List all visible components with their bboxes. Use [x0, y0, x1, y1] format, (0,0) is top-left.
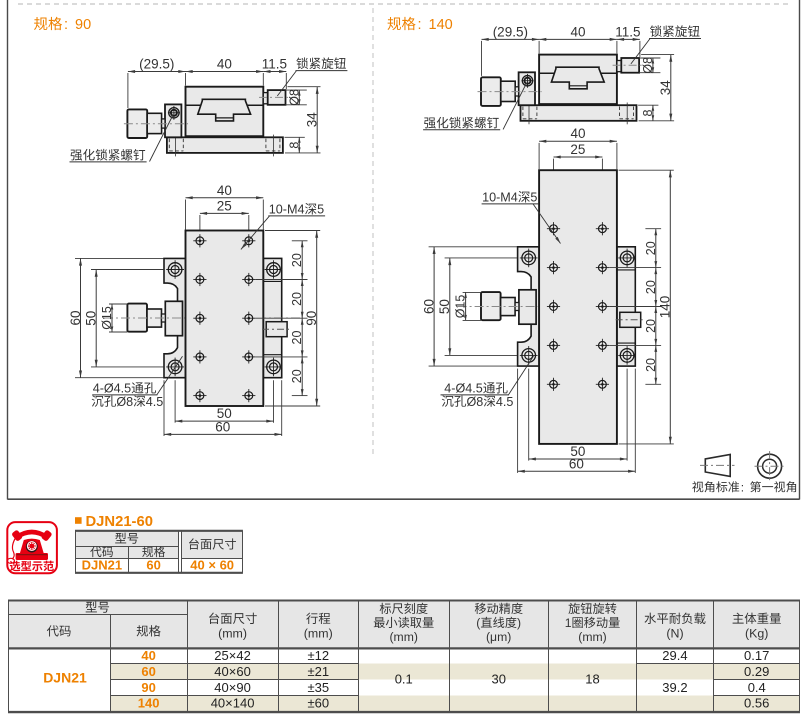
svg-text:50: 50: [437, 299, 452, 314]
svg-text:DJN21-60: DJN21-60: [86, 514, 153, 530]
svg-text:11.5: 11.5: [262, 57, 287, 72]
svg-text::: :: [64, 17, 68, 33]
svg-text:60: 60: [68, 310, 83, 325]
svg-text:25: 25: [217, 198, 232, 213]
svg-text:±60: ±60: [308, 696, 330, 711]
svg-text:4.5: 4.5: [146, 395, 164, 409]
svg-text:(μm): (μm): [486, 630, 511, 644]
svg-text:8: 8: [287, 142, 301, 149]
svg-text:60: 60: [421, 299, 436, 314]
svg-text:39.2: 39.2: [662, 680, 687, 695]
svg-text:40 × 60: 40 × 60: [190, 558, 234, 573]
svg-text:40: 40: [141, 648, 155, 663]
svg-text:34: 34: [658, 80, 673, 96]
svg-text:DJN21: DJN21: [43, 670, 87, 686]
svg-text:Ø15: Ø15: [454, 295, 468, 319]
svg-text:(mm): (mm): [578, 630, 606, 644]
svg-text:60: 60: [146, 558, 160, 573]
svg-text:20: 20: [290, 331, 304, 345]
svg-text:10-M4: 10-M4: [269, 203, 305, 217]
svg-text:Ø15: Ø15: [100, 306, 114, 330]
svg-text:40: 40: [571, 24, 586, 39]
svg-text:0.29: 0.29: [744, 664, 769, 679]
svg-text:(Kg): (Kg): [745, 626, 768, 640]
svg-text:90: 90: [304, 311, 319, 326]
svg-text:4-Ø4.5: 4-Ø4.5: [444, 382, 483, 396]
svg-text:60: 60: [141, 664, 155, 679]
svg-text:DJN21: DJN21: [82, 558, 122, 573]
svg-text:±35: ±35: [308, 680, 330, 695]
svg-text:Ø8: Ø8: [467, 395, 484, 409]
svg-text:(29.5): (29.5): [139, 57, 174, 72]
svg-text:(29.5): (29.5): [493, 24, 528, 39]
svg-text:34: 34: [305, 112, 320, 128]
svg-text:10-M4: 10-M4: [482, 191, 518, 205]
svg-text:25: 25: [570, 142, 585, 157]
svg-text:29.4: 29.4: [662, 648, 687, 663]
svg-text:5: 5: [530, 191, 537, 205]
svg-text:4-Ø4.5: 4-Ø4.5: [93, 382, 132, 396]
svg-text:20: 20: [644, 241, 658, 255]
svg-text:20: 20: [290, 253, 304, 267]
svg-text:5: 5: [317, 203, 324, 217]
svg-text:4.5: 4.5: [496, 395, 514, 409]
svg-text:40×140: 40×140: [211, 696, 255, 711]
svg-text:11.5: 11.5: [615, 24, 640, 39]
svg-text:20: 20: [644, 319, 658, 333]
svg-text:30: 30: [492, 672, 506, 687]
svg-text:20: 20: [290, 292, 304, 306]
svg-text:20: 20: [290, 369, 304, 383]
svg-text:60: 60: [569, 456, 584, 471]
svg-text:40×90: 40×90: [214, 680, 251, 695]
svg-text:40: 40: [571, 126, 586, 141]
svg-text:40: 40: [217, 57, 232, 72]
svg-text:40×60: 40×60: [214, 664, 251, 679]
svg-text:25×42: 25×42: [214, 648, 251, 663]
svg-text:0.56: 0.56: [744, 696, 769, 711]
svg-text:140: 140: [429, 17, 453, 33]
svg-text:Ø8: Ø8: [287, 89, 301, 106]
svg-text:140: 140: [138, 696, 160, 711]
svg-text:(mm): (mm): [304, 626, 333, 640]
svg-text:±21: ±21: [308, 664, 330, 679]
svg-text:±12: ±12: [308, 648, 330, 663]
svg-text:50: 50: [84, 311, 99, 326]
svg-text:): ): [517, 616, 521, 630]
svg-text:(: (: [476, 616, 480, 630]
svg-text:0.1: 0.1: [395, 672, 413, 687]
svg-text:0.17: 0.17: [744, 648, 769, 663]
svg-text::: :: [741, 480, 744, 494]
svg-text:20: 20: [644, 280, 658, 294]
svg-text:Ø8: Ø8: [641, 57, 655, 74]
svg-text:40: 40: [217, 183, 232, 198]
svg-text:1: 1: [565, 616, 572, 630]
svg-text:0.4: 0.4: [748, 680, 766, 695]
svg-text:90: 90: [141, 680, 155, 695]
svg-text:60: 60: [215, 419, 230, 434]
svg-text::: :: [418, 17, 422, 33]
svg-text:8: 8: [641, 110, 655, 117]
svg-text:Ø8: Ø8: [116, 395, 133, 409]
svg-text:90: 90: [75, 17, 91, 33]
svg-text:140: 140: [658, 296, 673, 319]
svg-text:20: 20: [644, 358, 658, 372]
svg-text:(mm): (mm): [218, 626, 247, 640]
svg-text:18: 18: [585, 672, 599, 687]
svg-text:(N): (N): [666, 626, 683, 640]
svg-text:(mm): (mm): [390, 630, 418, 644]
